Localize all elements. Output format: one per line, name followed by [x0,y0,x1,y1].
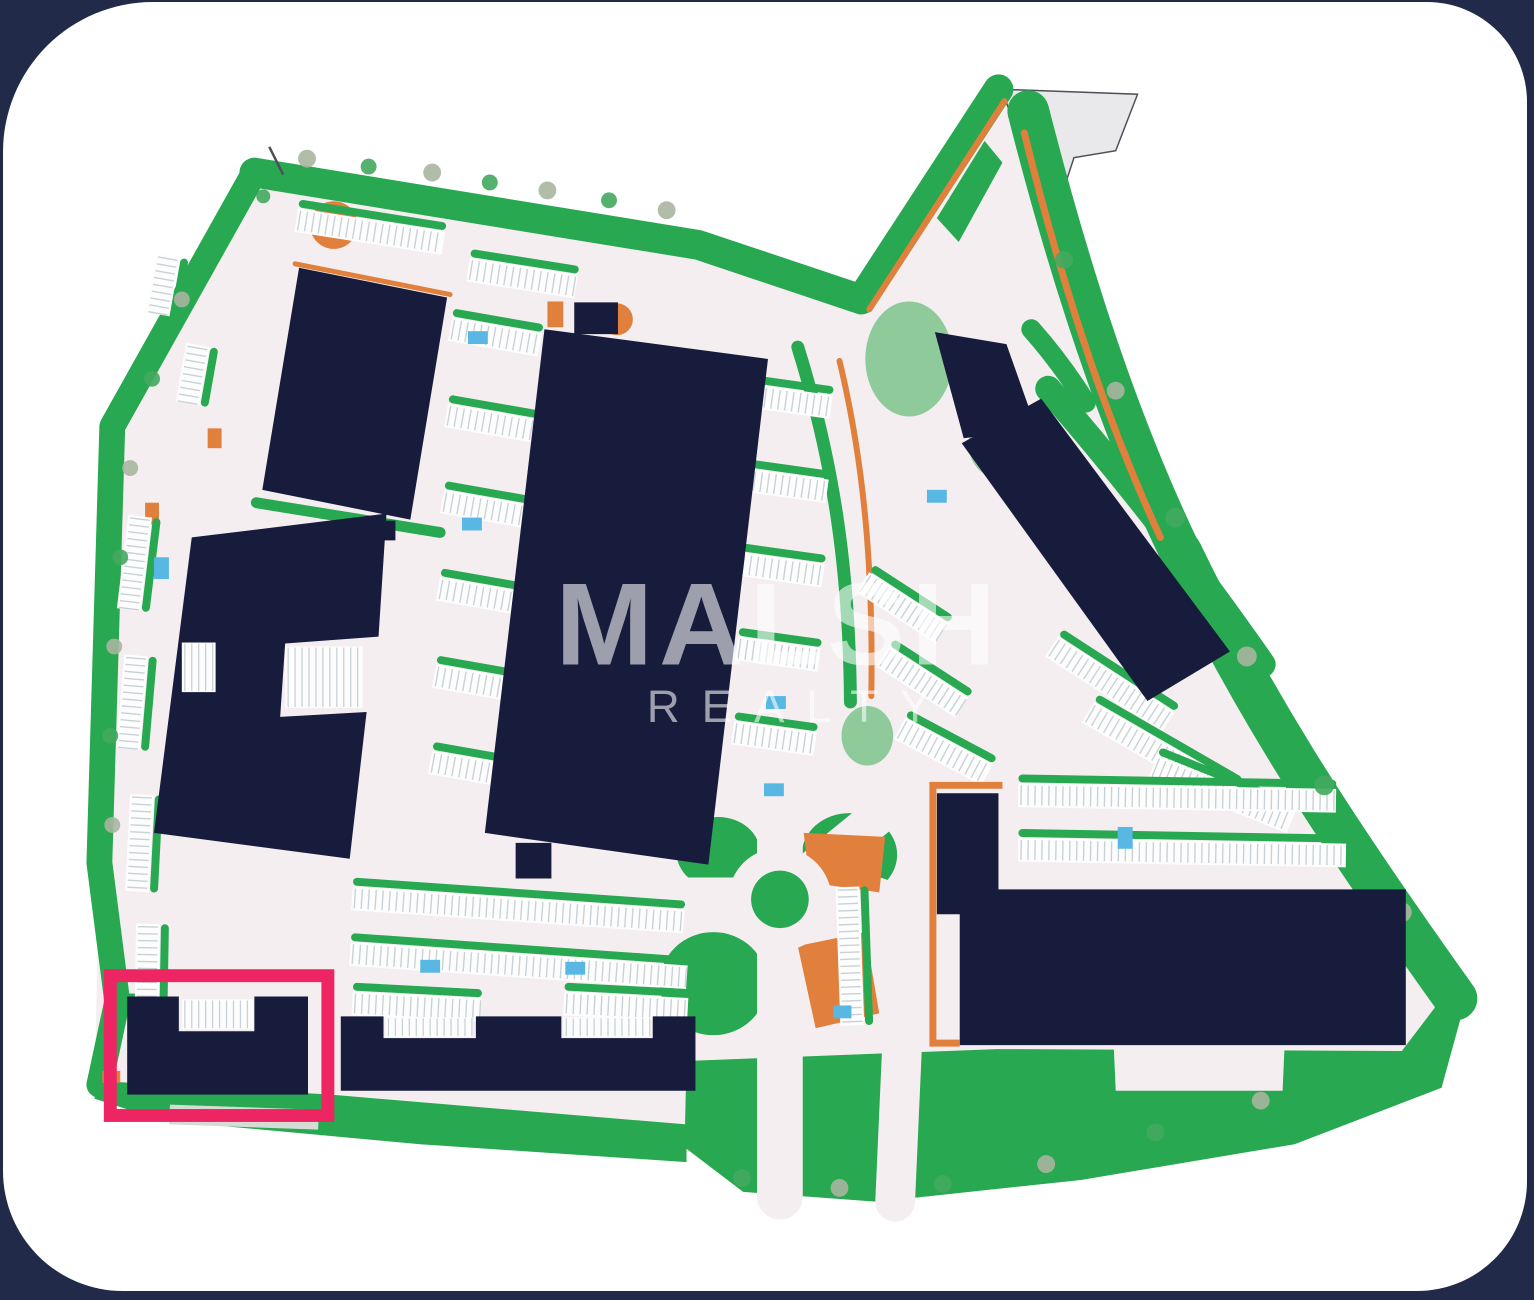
blue-stall [1118,827,1133,849]
tree [102,728,118,744]
roundabout [728,848,831,951]
tree [423,164,441,182]
stall-patch [385,1017,472,1037]
road-patch [1114,1045,1285,1091]
blue-stall [468,331,488,344]
watermark-line1: MALSH [555,558,1002,689]
tree [1237,647,1257,667]
tree [831,1179,849,1197]
blue-stall [764,783,784,796]
site-plan-card: MALSHREALTY [3,2,1527,1291]
tree [1037,1155,1055,1173]
tree [1107,382,1125,400]
stall-patch [563,1017,650,1037]
parking-row [563,983,689,1022]
tree [482,175,498,191]
blue-stall [462,518,482,531]
tree [1055,251,1073,269]
tree [122,460,138,476]
tree [298,150,316,168]
blue-stall [927,490,947,503]
blue-stall [420,960,440,973]
blue-stall [154,557,169,579]
blue-stall [834,1005,852,1018]
parking-row [1018,774,1336,812]
tree [104,817,120,833]
parking-row [351,983,482,1022]
tree [112,549,128,565]
tree [934,1175,952,1193]
tree [1252,1092,1270,1110]
orange-accent [208,428,222,448]
tree [144,371,160,387]
tree [1314,775,1334,795]
tree [538,181,556,199]
tree [733,1169,751,1187]
stall-patch [285,647,362,708]
road [895,1045,902,1202]
building-small-mid [516,843,552,879]
page-background: MALSHREALTY [0,0,1534,1300]
orange-accent [547,301,563,327]
tree [1146,1123,1164,1141]
tree [174,292,190,308]
tree [256,189,270,203]
green-blob [865,301,952,416]
stall-patch [182,643,216,693]
tree [106,639,122,655]
tree [658,201,676,219]
building-small-north [574,302,618,334]
parking-row [836,886,874,1026]
site-plan-map: MALSHREALTY [3,2,1527,1291]
tree [601,192,617,208]
tree [361,159,377,175]
tree [1165,508,1185,528]
watermark-line2: REALTY [647,681,952,732]
parking-row [1018,829,1346,867]
building-small-gap [378,521,396,541]
blue-stall [565,962,585,975]
stall-patch [182,999,254,1029]
